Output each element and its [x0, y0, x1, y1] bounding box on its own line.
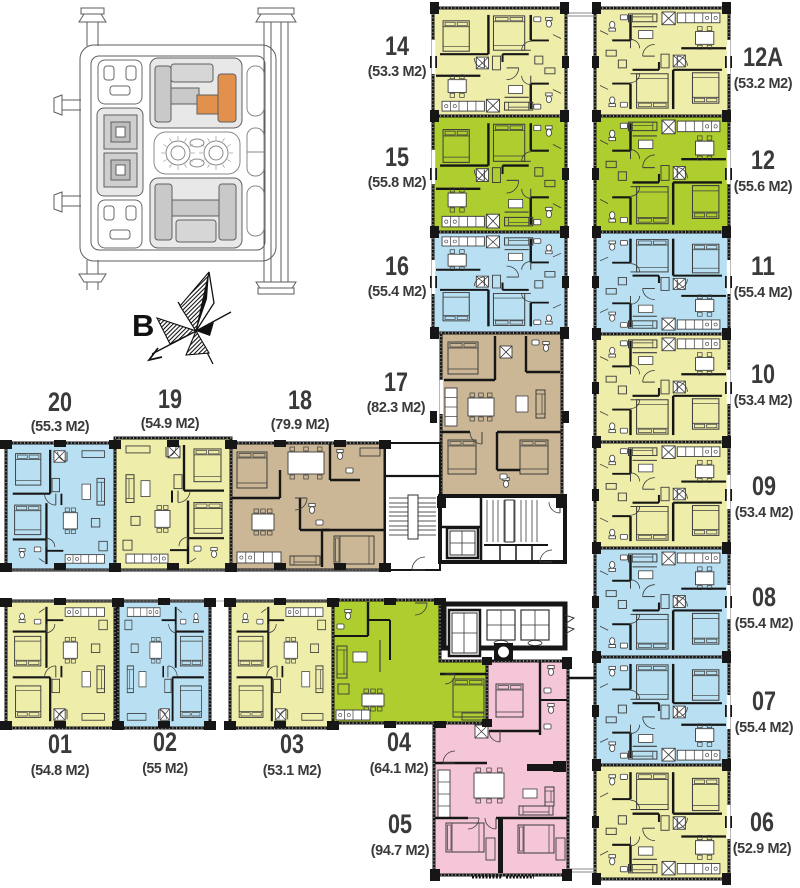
svg-text:(54.9 M2): (54.9 M2) [141, 415, 200, 432]
svg-text:07: 07 [752, 686, 776, 716]
svg-text:14: 14 [385, 31, 409, 61]
svg-text:(55.6 M2): (55.6 M2) [734, 178, 793, 195]
svg-text:(54.8 M2): (54.8 M2) [31, 762, 90, 779]
svg-text:03: 03 [280, 729, 304, 759]
svg-text:(53.4 M2): (53.4 M2) [735, 504, 794, 521]
svg-text:02: 02 [153, 727, 177, 757]
svg-text:(55 M2): (55 M2) [142, 760, 188, 777]
svg-text:05: 05 [388, 809, 412, 839]
svg-text:(79.9 M2): (79.9 M2) [271, 416, 330, 433]
svg-text:(55.4 M2): (55.4 M2) [735, 719, 794, 736]
svg-text:12A: 12A [743, 42, 783, 72]
svg-text:15: 15 [385, 142, 409, 172]
svg-text:(82.3 M2): (82.3 M2) [367, 399, 426, 416]
svg-text:(53.4 M2): (53.4 M2) [734, 392, 793, 409]
svg-text:19: 19 [158, 384, 182, 414]
svg-text:(55.4 M2): (55.4 M2) [368, 283, 427, 300]
svg-text:(64.1 M2): (64.1 M2) [370, 760, 429, 777]
svg-text:12: 12 [751, 145, 775, 175]
svg-text:(55.4 M2): (55.4 M2) [734, 284, 793, 301]
svg-text:(94.7 M2): (94.7 M2) [371, 842, 430, 859]
svg-text:(55.4 M2): (55.4 M2) [735, 615, 794, 632]
svg-text:(53.3 M2): (53.3 M2) [368, 63, 427, 80]
svg-text:08: 08 [752, 582, 776, 612]
svg-text:(55.8 M2): (55.8 M2) [368, 174, 427, 191]
svg-text:(55.3 M2): (55.3 M2) [31, 418, 90, 435]
svg-text:18: 18 [288, 385, 312, 415]
svg-text:10: 10 [751, 359, 775, 389]
svg-text:09: 09 [752, 471, 776, 501]
svg-text:(52.9 M2): (52.9 M2) [733, 840, 792, 857]
svg-text:20: 20 [48, 387, 72, 417]
svg-text:01: 01 [48, 729, 72, 759]
svg-text:16: 16 [385, 251, 409, 281]
svg-text:17: 17 [384, 367, 408, 397]
svg-text:(53.1 M2): (53.1 M2) [263, 762, 322, 779]
svg-text:(53.2 M2): (53.2 M2) [734, 75, 793, 92]
svg-text:B: B [132, 308, 154, 343]
svg-text:04: 04 [387, 727, 411, 757]
svg-text:11: 11 [751, 251, 775, 281]
svg-text:06: 06 [750, 807, 774, 837]
